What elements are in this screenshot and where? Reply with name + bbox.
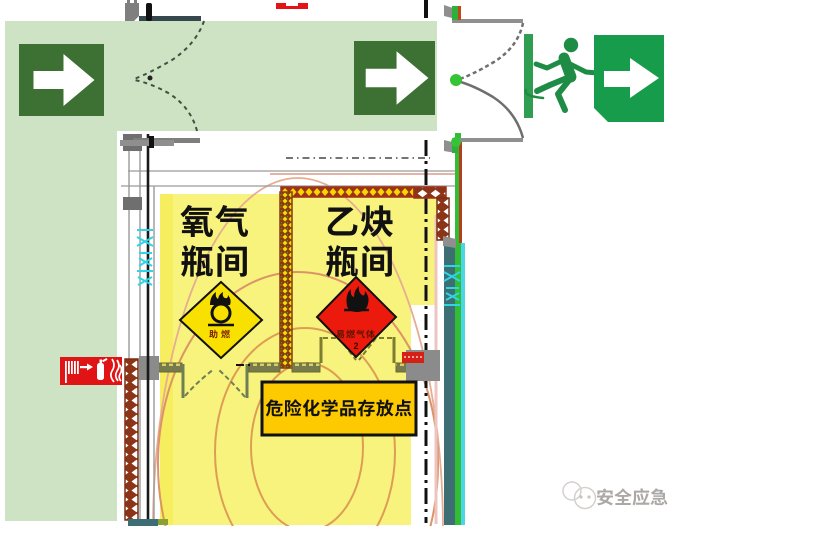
svg-text:2: 2 bbox=[353, 341, 358, 351]
